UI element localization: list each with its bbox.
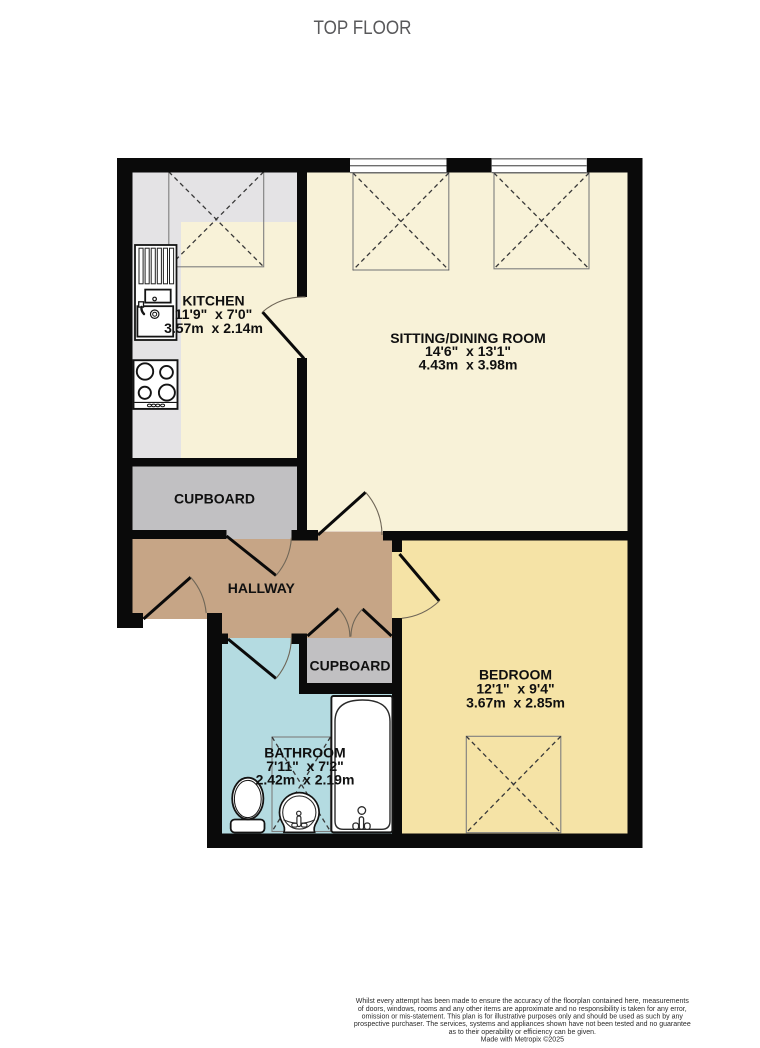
svg-text:CUPBOARD: CUPBOARD [310,658,391,674]
svg-text:omission or mis-statement. Thi: omission or mis-statement. This plan is … [362,1014,684,1021]
svg-text:Made with Metropix ©2025: Made with Metropix ©2025 [481,1036,564,1044]
svg-text:3.67m x 2.85m: 3.67m x 2.85m [466,694,565,710]
svg-text:CUPBOARD: CUPBOARD [174,491,255,507]
svg-text:of doors, windows, rooms and a: of doors, windows, rooms and any other i… [358,1006,687,1013]
svg-text:prospective purchaser. The ser: prospective purchaser. The services, sys… [354,1021,691,1028]
svg-text:4.43m x 3.98m: 4.43m x 3.98m [419,357,518,373]
svg-text:TOP FLOOR: TOP FLOOR [314,18,412,39]
svg-text:HALLWAY: HALLWAY [228,580,296,596]
svg-text:Whilst every attempt has been: Whilst every attempt has been made to en… [356,998,690,1005]
svg-text:as to their operability or eff: as to their operability or efficiency ca… [449,1029,596,1036]
svg-text:3.57m x 2.14m: 3.57m x 2.14m [164,320,263,336]
svg-text:2.42m x 2.19m: 2.42m x 2.19m [256,772,355,788]
